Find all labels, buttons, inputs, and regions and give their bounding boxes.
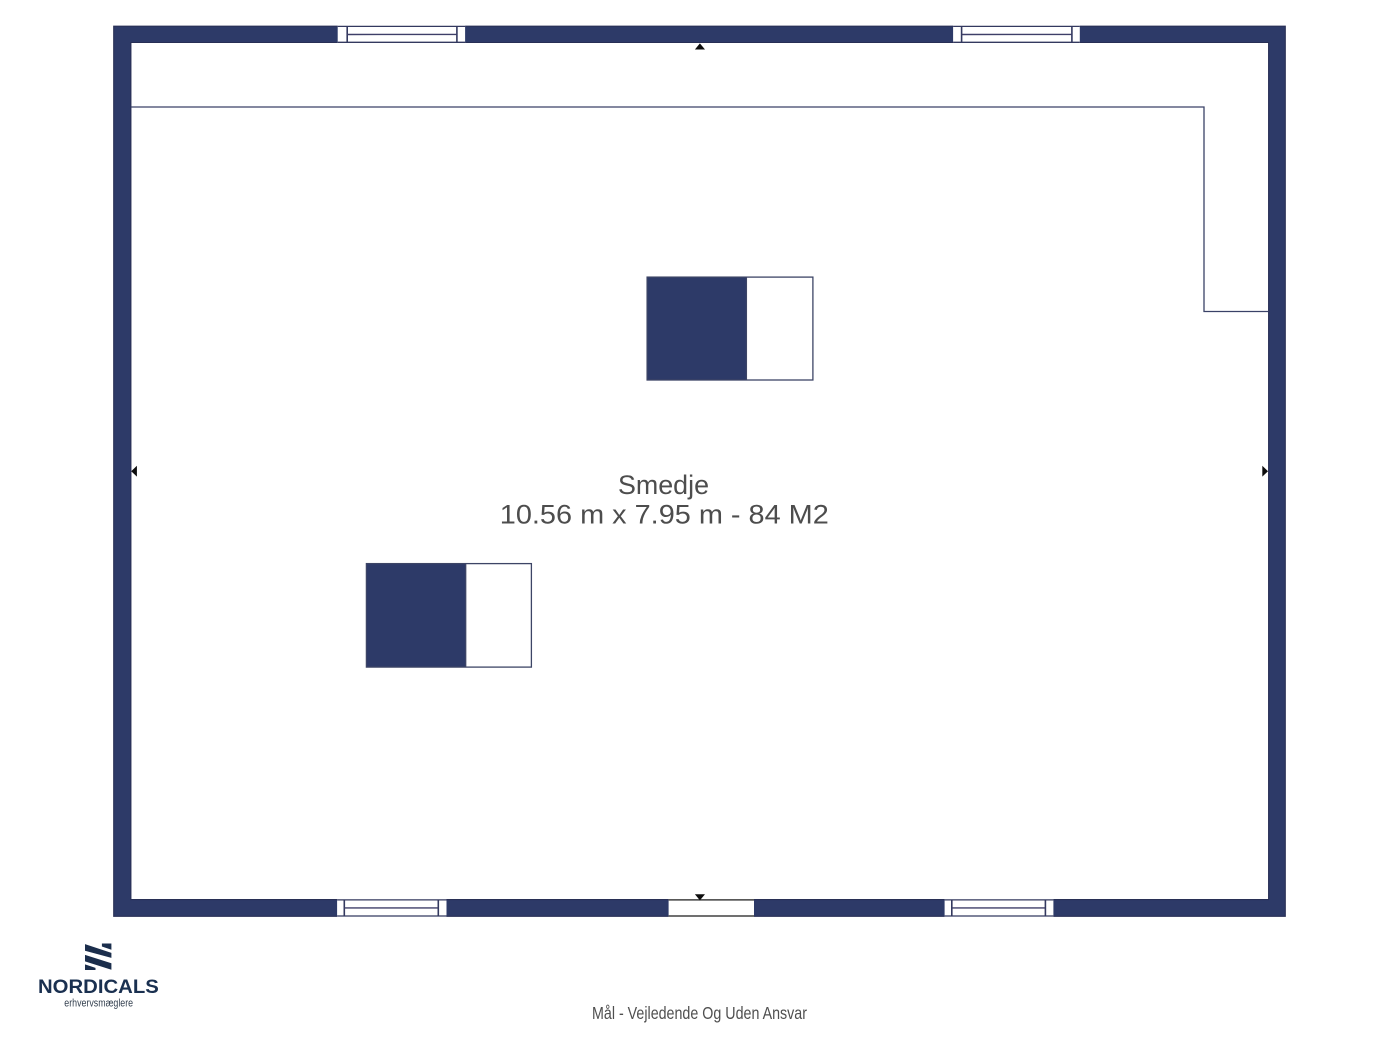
svg-text:Smedje: Smedje [618,470,709,500]
svg-text:10.56 m x 7.95 m - 84 M2: 10.56 m x 7.95 m - 84 M2 [500,500,829,530]
svg-text:Mål - Vejledende Og Uden Ansva: Mål - Vejledende Og Uden Ansvar [592,1003,807,1023]
svg-text:erhvervsmæglere: erhvervsmæglere [64,998,133,1010]
svg-text:NORDICALS: NORDICALS [38,977,159,998]
